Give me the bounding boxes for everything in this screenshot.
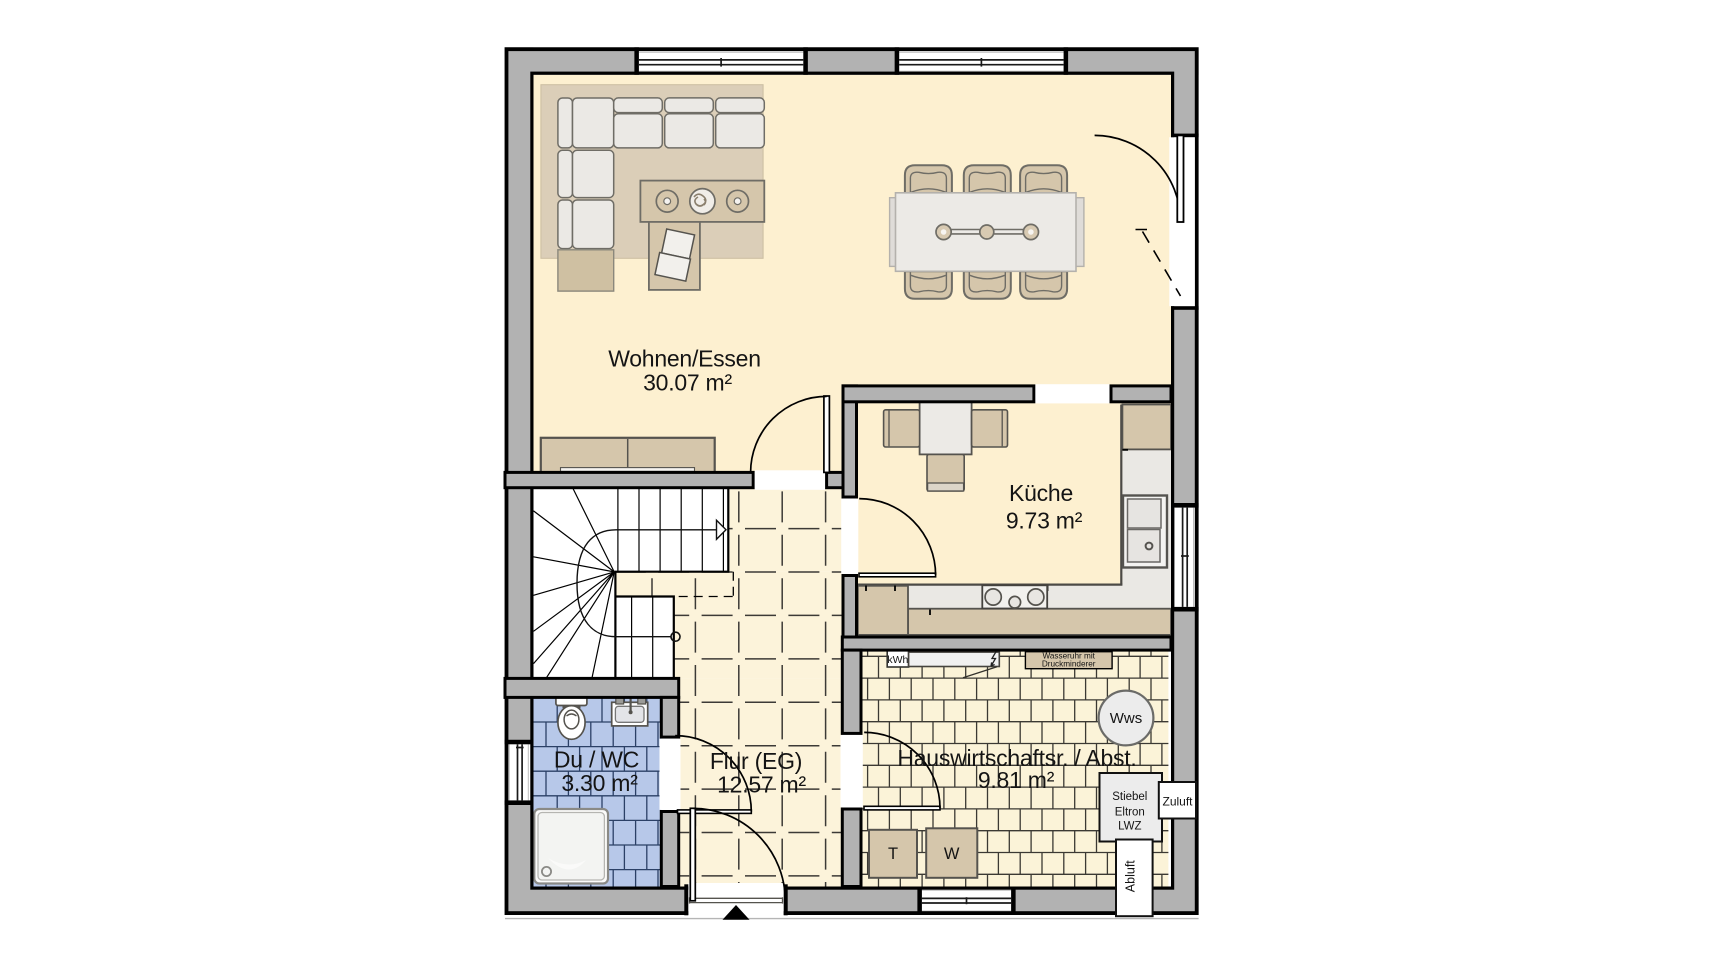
svg-text:T: T [888, 845, 898, 863]
svg-text:W: W [944, 845, 960, 863]
svg-text:Stiebel: Stiebel [1112, 791, 1147, 803]
svg-text:3.30 m²: 3.30 m² [561, 770, 638, 796]
svg-text:12.57 m²: 12.57 m² [717, 771, 806, 797]
svg-text:Wohnen/Essen: Wohnen/Essen [608, 346, 761, 372]
svg-text:Druckminderer: Druckminderer [1042, 660, 1096, 669]
svg-text:Küche: Küche [1009, 480, 1073, 506]
svg-text:kWh: kWh [887, 654, 908, 666]
svg-text:LWZ: LWZ [1118, 821, 1141, 833]
svg-text:Abluft: Abluft [1123, 860, 1137, 892]
svg-text:30.07 m²: 30.07 m² [643, 370, 732, 396]
svg-text:Flur (EG): Flur (EG) [710, 748, 802, 774]
svg-text:Zuluft: Zuluft [1162, 795, 1193, 809]
svg-text:9.81 m²: 9.81 m² [978, 767, 1055, 793]
svg-text:Wws: Wws [1110, 710, 1143, 727]
svg-text:9.73 m²: 9.73 m² [1006, 508, 1083, 534]
svg-text:Du / WC: Du / WC [554, 747, 639, 773]
svg-text:Eltron: Eltron [1115, 806, 1145, 818]
